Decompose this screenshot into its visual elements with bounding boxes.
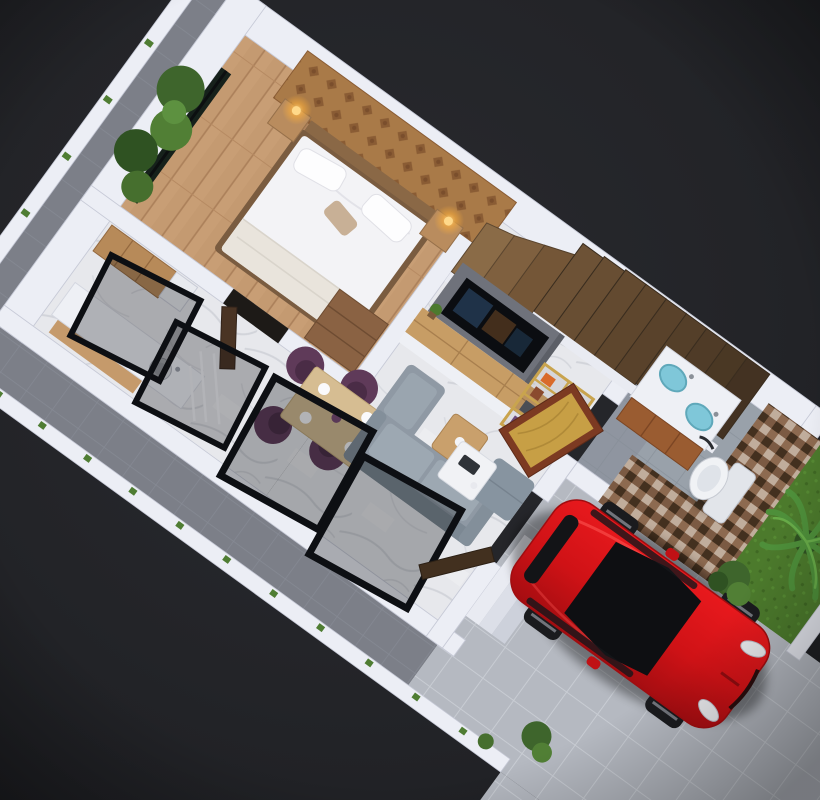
render-stage xyxy=(0,0,820,800)
vignette-overlay xyxy=(0,0,820,800)
floor-plan-render xyxy=(0,0,820,800)
